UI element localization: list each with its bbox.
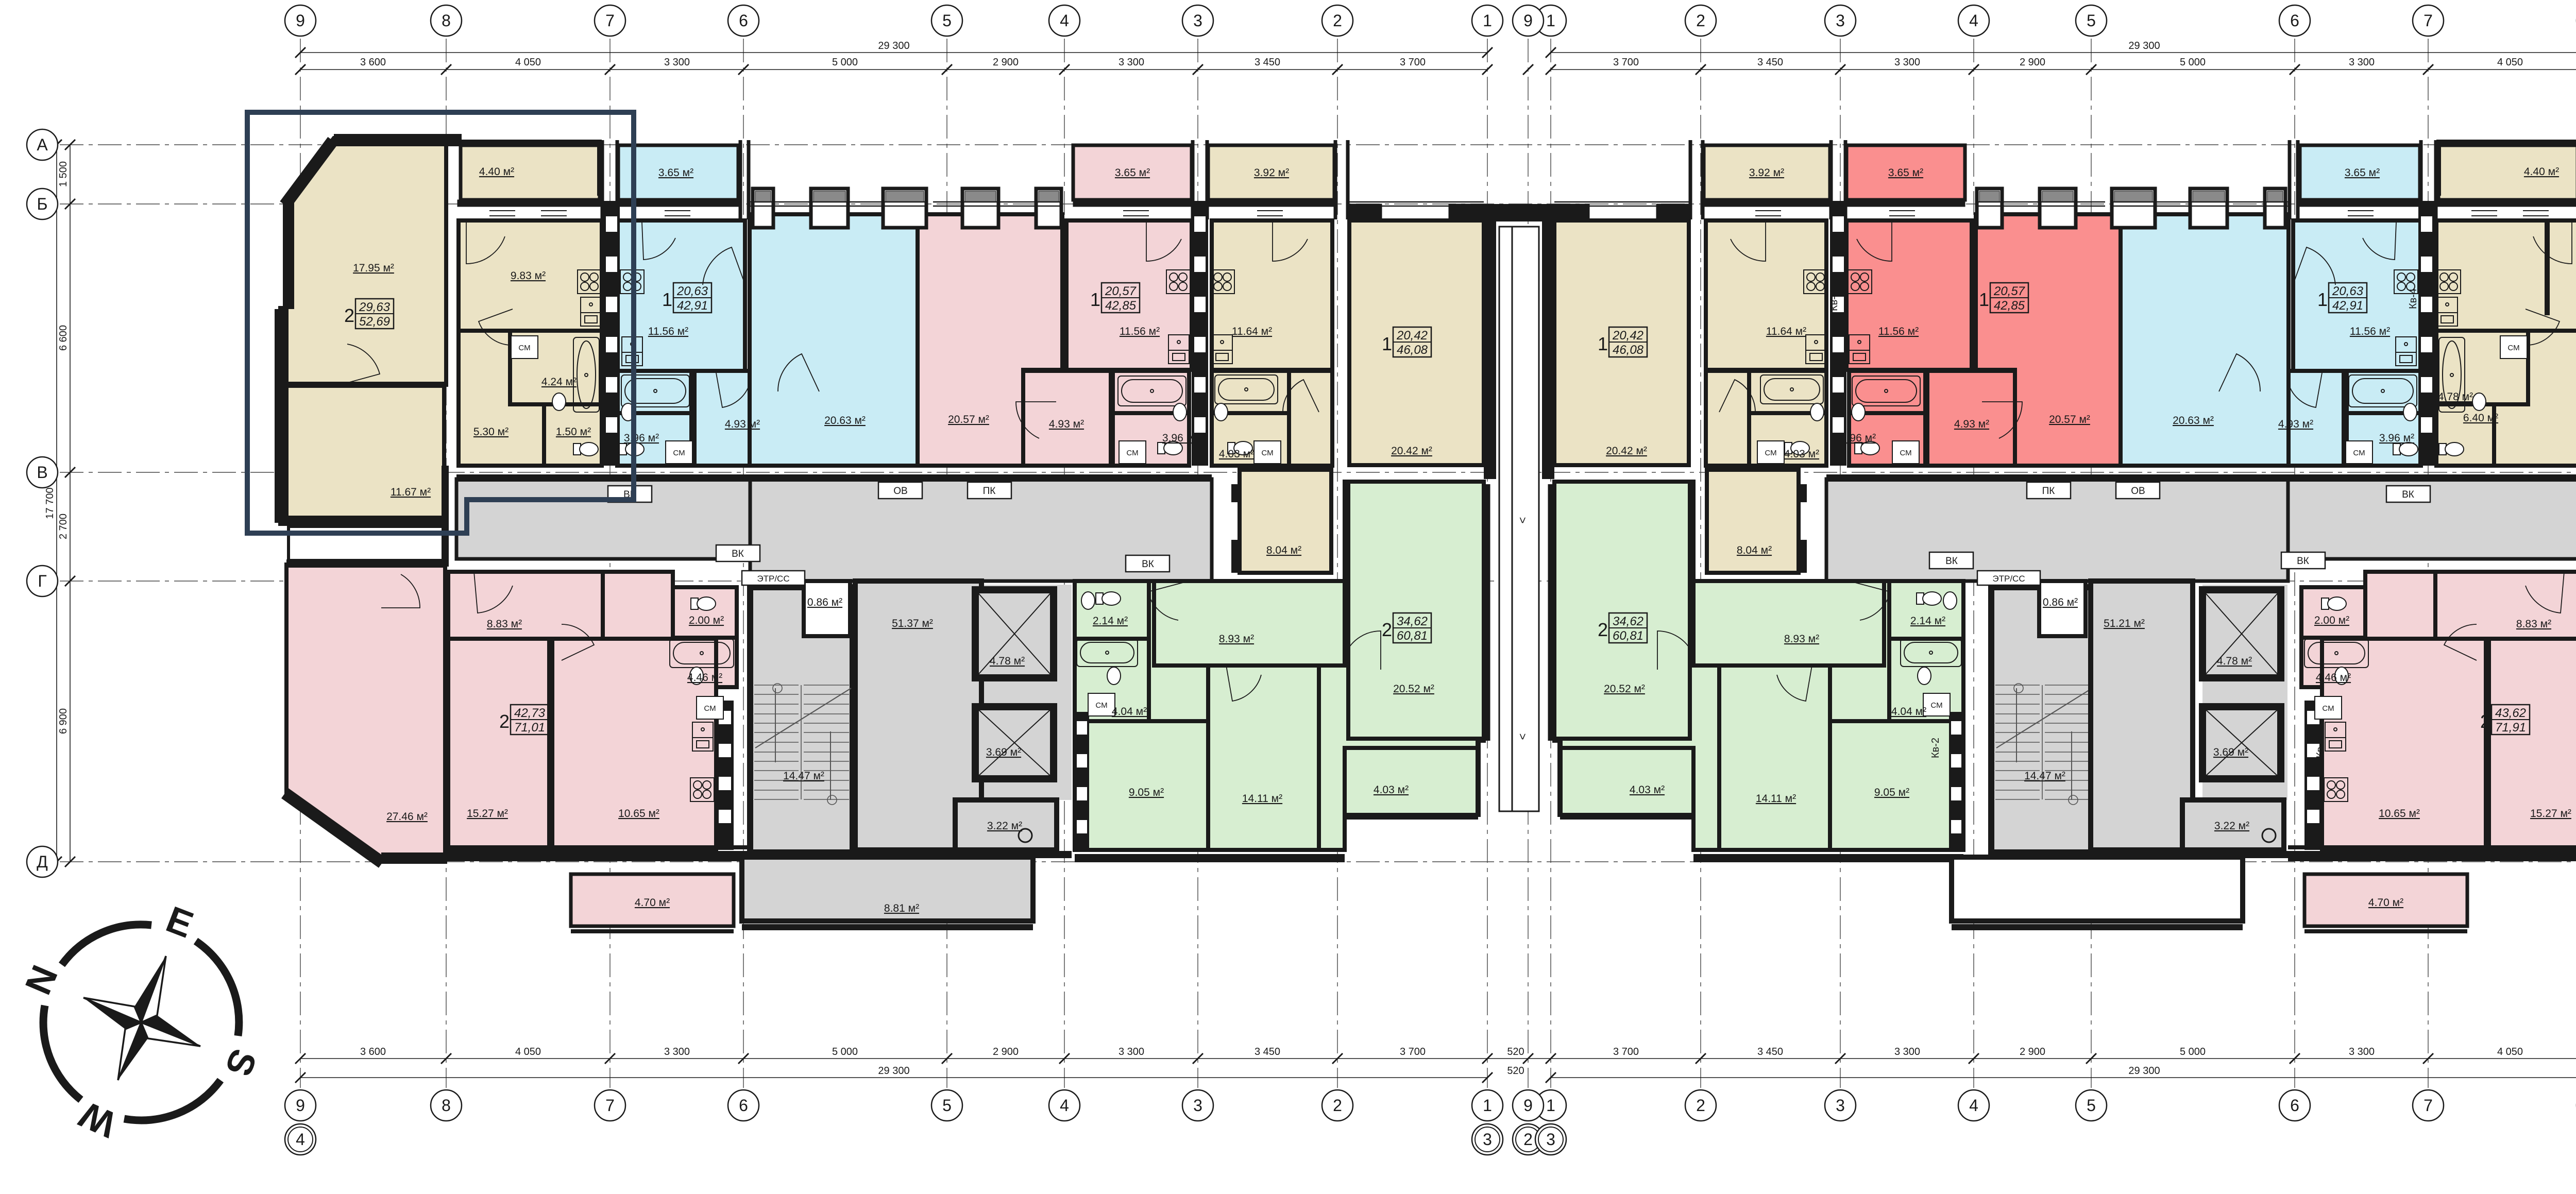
svg-text:17.95 м²: 17.95 м² [353, 262, 394, 274]
svg-text:СМ: СМ [2353, 449, 2365, 457]
svg-text:4.46 м²: 4.46 м² [2316, 672, 2351, 684]
svg-text:3 700: 3 700 [1613, 1046, 1639, 1057]
svg-text:9: 9 [1523, 11, 1533, 30]
svg-text:46,08: 46,08 [1613, 343, 1644, 357]
svg-text:ВК: ВК [2297, 556, 2309, 567]
svg-text:Г: Г [38, 572, 46, 590]
svg-text:9: 9 [296, 11, 305, 30]
svg-text:4.93 м²: 4.93 м² [1049, 418, 1084, 430]
svg-text:ВК: ВК [2402, 489, 2414, 500]
svg-text:3: 3 [1836, 11, 1845, 30]
svg-text:2 900: 2 900 [993, 57, 1019, 68]
svg-text:3 300: 3 300 [1894, 1046, 1920, 1057]
svg-text:4.46 м²: 4.46 м² [687, 672, 722, 684]
svg-text:ЭТР/СС: ЭТР/СС [757, 574, 789, 584]
svg-text:29 300: 29 300 [2128, 1065, 2160, 1077]
svg-text:2.14 м²: 2.14 м² [1093, 615, 1128, 627]
svg-text:3 700: 3 700 [1613, 57, 1639, 68]
svg-text:1: 1 [1546, 11, 1555, 30]
svg-text:20.63 м²: 20.63 м² [824, 415, 866, 427]
svg-text:ВК: ВК [732, 549, 744, 559]
svg-text:5: 5 [942, 1096, 952, 1115]
svg-text:9: 9 [296, 1096, 305, 1115]
svg-text:3 700: 3 700 [1400, 1046, 1426, 1057]
svg-text:4.24 м²: 4.24 м² [541, 376, 577, 388]
svg-text:15.27 м²: 15.27 м² [2530, 808, 2571, 820]
svg-text:СМ: СМ [2322, 704, 2334, 713]
svg-text:3: 3 [1483, 1130, 1492, 1149]
svg-text:42,85: 42,85 [1994, 299, 2025, 313]
svg-text:1: 1 [1382, 333, 1392, 354]
svg-text:7: 7 [605, 1096, 615, 1115]
svg-text:42,73: 42,73 [514, 706, 546, 720]
svg-text:3.92 м²: 3.92 м² [1749, 167, 1784, 179]
svg-text:ПК: ПК [983, 486, 996, 497]
svg-text:51.21 м²: 51.21 м² [2104, 618, 2145, 629]
svg-text:СМ: СМ [673, 449, 685, 457]
svg-text:4.04 м²: 4.04 м² [1891, 706, 1926, 718]
svg-text:4.78 м²: 4.78 м² [2217, 655, 2252, 667]
svg-text:ВК: ВК [1945, 556, 1958, 567]
svg-text:71,01: 71,01 [514, 721, 545, 735]
svg-text:20,42: 20,42 [1396, 329, 1428, 343]
svg-text:5.30 м²: 5.30 м² [473, 426, 509, 438]
svg-text:1: 1 [662, 289, 672, 310]
svg-text:3 700: 3 700 [1400, 57, 1426, 68]
svg-text:4 050: 4 050 [515, 1046, 541, 1057]
svg-text:5 000: 5 000 [2180, 1046, 2206, 1057]
svg-text:4.40 м²: 4.40 м² [2524, 166, 2559, 178]
svg-text:3 450: 3 450 [1255, 1046, 1280, 1057]
svg-text:34,62: 34,62 [1397, 615, 1428, 628]
svg-text:2: 2 [499, 711, 510, 732]
svg-text:1: 1 [1546, 1096, 1555, 1115]
svg-text:4: 4 [1060, 1096, 1069, 1115]
svg-text:3.65 м²: 3.65 м² [2345, 167, 2380, 179]
svg-text:СМ: СМ [704, 704, 716, 713]
svg-text:8.83 м²: 8.83 м² [487, 618, 522, 630]
svg-text:2: 2 [1598, 619, 1608, 640]
svg-text:Кв-4: Кв-4 [2408, 288, 2419, 309]
svg-text:6 600: 6 600 [58, 325, 69, 351]
svg-text:Кв-1: Кв-1 [2315, 738, 2326, 758]
svg-text:3.22 м²: 3.22 м² [987, 820, 1022, 832]
svg-text:3.22 м²: 3.22 м² [2214, 820, 2249, 832]
svg-text:3: 3 [1836, 1096, 1845, 1115]
svg-text:51.37 м²: 51.37 м² [892, 618, 933, 629]
svg-text:2 900: 2 900 [993, 1046, 1019, 1057]
svg-text:3: 3 [1193, 1096, 1202, 1115]
svg-text:8.93 м²: 8.93 м² [1219, 633, 1254, 645]
svg-text:46,08: 46,08 [1397, 343, 1428, 357]
svg-text:11.64 м²: 11.64 м² [1232, 326, 1272, 337]
svg-text:29,63: 29,63 [359, 300, 391, 314]
svg-text:20,63: 20,63 [676, 284, 708, 298]
svg-text:2 900: 2 900 [2020, 57, 2045, 68]
svg-text:4.70 м²: 4.70 м² [635, 897, 670, 909]
svg-text:20.57 м²: 20.57 м² [2049, 414, 2090, 425]
svg-text:>: > [1516, 517, 1529, 524]
svg-text:3 600: 3 600 [360, 57, 386, 68]
svg-text:3.69 м²: 3.69 м² [2213, 746, 2248, 758]
svg-text:4.78 м²: 4.78 м² [990, 655, 1025, 667]
svg-text:14.47 м²: 14.47 м² [2024, 770, 2065, 782]
svg-text:4 050: 4 050 [2497, 1046, 2523, 1057]
svg-text:СМ: СМ [2507, 344, 2519, 352]
svg-text:3 300: 3 300 [1118, 57, 1144, 68]
svg-text:ВК: ВК [1142, 559, 1154, 570]
svg-text:5: 5 [942, 11, 952, 30]
svg-text:2: 2 [1696, 1096, 1705, 1115]
svg-text:60,81: 60,81 [1397, 629, 1428, 643]
svg-text:29 300: 29 300 [2128, 40, 2160, 52]
svg-text:Кв-2: Кв-2 [1930, 738, 1941, 758]
svg-text:3.92 м²: 3.92 м² [1254, 167, 1289, 179]
svg-text:8.04 м²: 8.04 м² [1737, 544, 1772, 556]
svg-text:2: 2 [344, 305, 354, 326]
svg-text:3 300: 3 300 [2349, 1046, 2375, 1057]
svg-text:4.40 м²: 4.40 м² [479, 166, 514, 178]
svg-text:3 600: 3 600 [360, 1046, 386, 1057]
svg-text:11.56 м²: 11.56 м² [648, 326, 688, 337]
svg-text:9: 9 [1523, 1096, 1533, 1115]
svg-text:4.03 м²: 4.03 м² [1784, 448, 1819, 460]
svg-text:4: 4 [1060, 11, 1069, 30]
svg-text:6: 6 [2290, 11, 2299, 30]
svg-text:520: 520 [1507, 1046, 1524, 1057]
svg-text:7: 7 [2424, 1096, 2433, 1115]
svg-text:4: 4 [296, 1130, 305, 1149]
svg-text:60,81: 60,81 [1613, 629, 1643, 643]
svg-text:29 300: 29 300 [878, 1065, 909, 1077]
svg-text:34,62: 34,62 [1613, 615, 1643, 628]
svg-text:СМ: СМ [1261, 449, 1273, 457]
svg-text:3.96 м²: 3.96 м² [624, 432, 659, 444]
svg-text:4: 4 [1969, 11, 1978, 30]
svg-text:20,57: 20,57 [1993, 284, 2026, 298]
svg-text:3 300: 3 300 [1894, 57, 1920, 68]
svg-text:5 000: 5 000 [832, 1046, 858, 1057]
svg-text:3 450: 3 450 [1255, 57, 1280, 68]
svg-text:1 500: 1 500 [58, 161, 69, 187]
svg-text:Б: Б [37, 195, 48, 213]
svg-text:7: 7 [605, 11, 615, 30]
svg-text:5 000: 5 000 [832, 57, 858, 68]
svg-text:СМ: СМ [518, 344, 530, 352]
svg-text:СМ: СМ [1095, 701, 1107, 710]
svg-text:2: 2 [2480, 711, 2490, 732]
svg-text:2.00 м²: 2.00 м² [2314, 615, 2349, 626]
svg-text:2.14 м²: 2.14 м² [1910, 615, 1945, 627]
svg-text:20.42 м²: 20.42 м² [1391, 445, 1432, 457]
svg-text:5: 5 [2087, 1096, 2096, 1115]
svg-text:3.96 м²: 3.96 м² [1162, 432, 1197, 444]
svg-text:1: 1 [2317, 289, 2328, 310]
svg-text:3 300: 3 300 [1118, 1046, 1144, 1057]
svg-text:1.50 м²: 1.50 м² [556, 426, 591, 438]
svg-text:29 300: 29 300 [878, 40, 909, 52]
svg-text:52,69: 52,69 [359, 315, 390, 329]
svg-text:20,63: 20,63 [2332, 284, 2364, 298]
svg-text:4.03 м²: 4.03 м² [1630, 784, 1665, 796]
svg-text:6: 6 [739, 11, 748, 30]
svg-text:4.03 м²: 4.03 м² [1219, 448, 1254, 460]
svg-text:17 700: 17 700 [44, 487, 56, 519]
svg-text:4.78 м²: 4.78 м² [2438, 391, 2473, 403]
svg-text:20.52 м²: 20.52 м² [1393, 683, 1434, 695]
svg-text:3 450: 3 450 [1757, 57, 1783, 68]
svg-text:2 900: 2 900 [2020, 1046, 2045, 1057]
svg-text:20.42 м²: 20.42 м² [1606, 445, 1647, 457]
svg-text:1: 1 [1979, 289, 1989, 310]
svg-text:42,91: 42,91 [677, 299, 708, 313]
svg-text:4: 4 [1969, 1096, 1978, 1115]
svg-text:8.81 м²: 8.81 м² [884, 902, 919, 914]
svg-text:4.03 м²: 4.03 м² [1374, 784, 1409, 796]
svg-text:ПК: ПК [2042, 486, 2055, 497]
svg-text:СМ: СМ [1930, 701, 1942, 710]
svg-text:3: 3 [1546, 1130, 1555, 1149]
svg-text:10.65 м²: 10.65 м² [618, 808, 659, 820]
svg-text:3 450: 3 450 [1757, 1046, 1783, 1057]
svg-text:20.63 м²: 20.63 м² [2173, 415, 2214, 427]
svg-text:27.46 м²: 27.46 м² [386, 811, 428, 823]
svg-text:2: 2 [1696, 11, 1705, 30]
svg-text:2 700: 2 700 [58, 514, 69, 539]
svg-text:0.86 м²: 0.86 м² [2043, 596, 2078, 608]
svg-text:520: 520 [1507, 1065, 1524, 1077]
svg-text:15.27 м²: 15.27 м² [467, 808, 508, 820]
svg-text:3.65 м²: 3.65 м² [1888, 167, 1923, 179]
svg-text:6: 6 [2290, 1096, 2299, 1115]
svg-text:11.56 м²: 11.56 м² [1878, 326, 1919, 337]
svg-text:1: 1 [1483, 11, 1492, 30]
svg-text:0.86 м²: 0.86 м² [807, 596, 842, 608]
svg-text:14.11 м²: 14.11 м² [1242, 793, 1282, 805]
svg-text:3 300: 3 300 [664, 57, 690, 68]
svg-text:42,91: 42,91 [2332, 299, 2363, 313]
svg-text:3.96 м²: 3.96 м² [1841, 432, 1876, 444]
svg-text:2: 2 [1333, 11, 1342, 30]
svg-text:5: 5 [2087, 11, 2096, 30]
svg-text:5 000: 5 000 [2180, 57, 2206, 68]
svg-text:4.93 м²: 4.93 м² [2278, 418, 2313, 430]
svg-text:>: > [1516, 734, 1529, 740]
svg-text:20,57: 20,57 [1105, 284, 1137, 298]
svg-text:8.93 м²: 8.93 м² [1784, 633, 1819, 645]
svg-text:ОВ: ОВ [893, 486, 907, 497]
svg-text:6: 6 [739, 1096, 748, 1115]
svg-text:СМ: СМ [1126, 449, 1138, 457]
svg-text:4 050: 4 050 [515, 57, 541, 68]
svg-text:11.56 м²: 11.56 м² [1120, 326, 1160, 337]
svg-text:10.65 м²: 10.65 м² [2379, 808, 2420, 820]
svg-text:3: 3 [1193, 11, 1202, 30]
svg-text:4.70 м²: 4.70 м² [2368, 897, 2403, 909]
svg-text:8.83 м²: 8.83 м² [2516, 618, 2551, 630]
svg-text:8: 8 [442, 11, 451, 30]
svg-text:Д: Д [37, 852, 48, 871]
svg-text:3 300: 3 300 [664, 1046, 690, 1057]
svg-text:3.65 м²: 3.65 м² [658, 167, 693, 179]
svg-text:20,42: 20,42 [1612, 329, 1643, 343]
svg-text:СМ: СМ [1900, 449, 1911, 457]
svg-text:А: А [37, 135, 48, 154]
svg-text:9.05 м²: 9.05 м² [1129, 787, 1164, 798]
svg-text:4.93 м²: 4.93 м² [1954, 418, 1989, 430]
svg-text:1: 1 [1598, 333, 1608, 354]
svg-text:9.05 м²: 9.05 м² [1874, 787, 1909, 798]
svg-text:ОВ: ОВ [2131, 486, 2145, 497]
svg-text:В: В [37, 463, 47, 482]
svg-text:3.65 м²: 3.65 м² [1115, 167, 1150, 179]
svg-text:43,62: 43,62 [2495, 706, 2526, 720]
svg-text:4 050: 4 050 [2497, 57, 2523, 68]
svg-text:2: 2 [1333, 1096, 1342, 1115]
svg-text:4.04 м²: 4.04 м² [1112, 706, 1147, 718]
svg-text:20.57 м²: 20.57 м² [948, 414, 989, 425]
svg-text:8: 8 [442, 1096, 451, 1115]
svg-text:ЭТР/СС: ЭТР/СС [1992, 574, 2025, 584]
svg-text:6.40 м²: 6.40 м² [2463, 412, 2498, 424]
svg-text:2.00 м²: 2.00 м² [689, 615, 724, 626]
svg-text:11.56 м²: 11.56 м² [2350, 326, 2390, 337]
svg-text:7: 7 [2424, 11, 2433, 30]
svg-text:8.04 м²: 8.04 м² [1266, 544, 1301, 556]
svg-text:6 900: 6 900 [58, 708, 69, 734]
svg-text:9.83 м²: 9.83 м² [511, 270, 546, 282]
svg-text:14.47 м²: 14.47 м² [783, 770, 824, 782]
svg-text:4.93 м²: 4.93 м² [725, 418, 760, 430]
svg-text:20.52 м²: 20.52 м² [1604, 683, 1645, 695]
svg-text:14.11 м²: 14.11 м² [1756, 793, 1796, 805]
svg-text:2: 2 [1382, 619, 1392, 640]
svg-text:2: 2 [1523, 1130, 1533, 1149]
svg-text:СМ: СМ [1765, 449, 1776, 457]
svg-text:3.96 м²: 3.96 м² [2379, 432, 2414, 444]
svg-text:3 300: 3 300 [2349, 57, 2375, 68]
svg-text:11.67 м²: 11.67 м² [391, 486, 431, 498]
svg-text:3.69 м²: 3.69 м² [986, 746, 1021, 758]
svg-text:1: 1 [1090, 289, 1100, 310]
svg-text:11.64 м²: 11.64 м² [1766, 326, 1806, 337]
svg-text:Кв-3: Кв-3 [1828, 291, 1840, 311]
svg-text:42,85: 42,85 [1105, 299, 1137, 313]
svg-text:1: 1 [1483, 1096, 1492, 1115]
svg-text:71,91: 71,91 [2495, 721, 2526, 735]
